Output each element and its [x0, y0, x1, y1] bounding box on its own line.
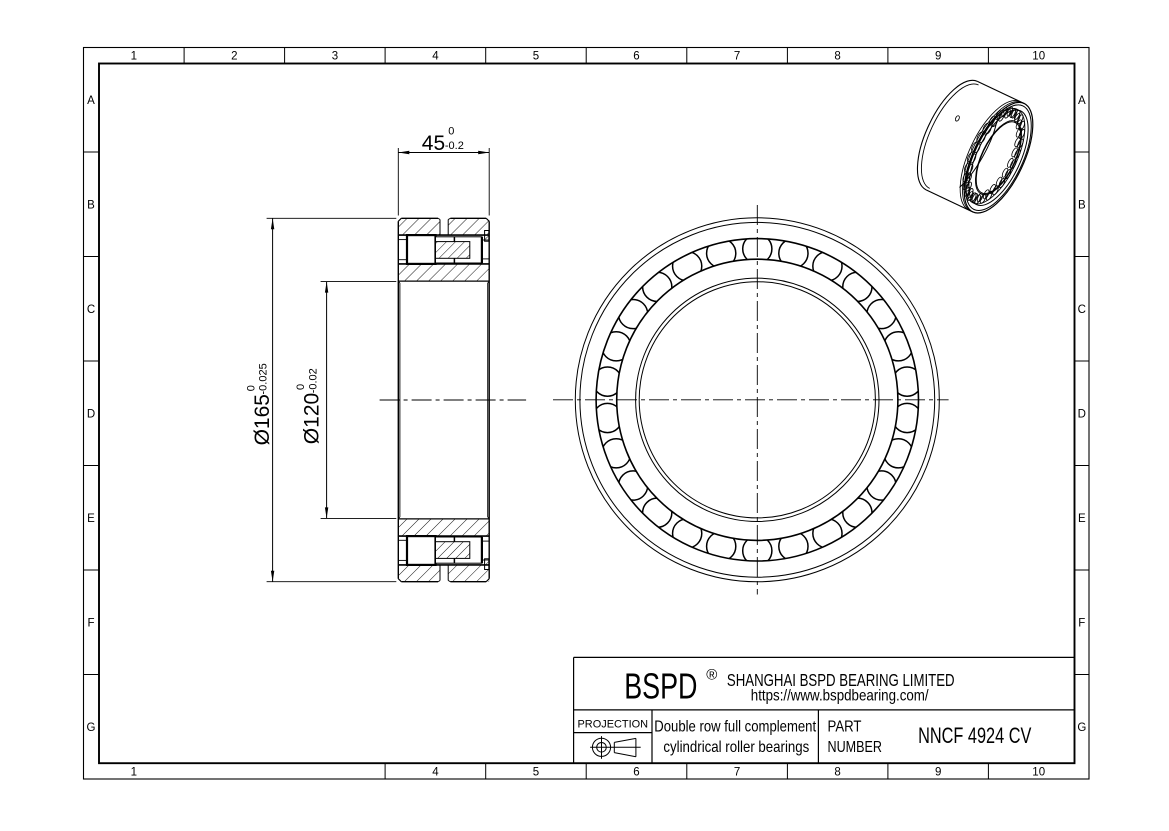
svg-text:BSPD: BSPD: [624, 665, 697, 706]
svg-text:G: G: [87, 722, 96, 734]
svg-text:10: 10: [1032, 51, 1045, 63]
svg-text:0: 0: [448, 125, 454, 137]
svg-text:4: 4: [432, 767, 439, 779]
svg-text:F: F: [87, 618, 94, 630]
svg-text:C: C: [1078, 304, 1086, 316]
svg-text:2: 2: [231, 51, 237, 63]
svg-text:7: 7: [734, 767, 740, 779]
svg-text:0: 0: [295, 384, 307, 390]
svg-text:8: 8: [834, 767, 840, 779]
svg-text:Ø165: Ø165: [251, 394, 274, 445]
svg-text:A: A: [1078, 95, 1086, 107]
svg-text:4: 4: [432, 51, 439, 63]
svg-text:D: D: [87, 408, 95, 420]
svg-text:5: 5: [533, 51, 539, 63]
svg-text:9: 9: [935, 51, 941, 63]
svg-text:NUMBER: NUMBER: [828, 739, 882, 756]
svg-text:Ø120: Ø120: [301, 393, 324, 444]
svg-text:PART: PART: [828, 719, 862, 736]
svg-text:B: B: [87, 199, 95, 211]
svg-text:G: G: [1077, 722, 1086, 734]
svg-text:E: E: [1078, 513, 1086, 525]
svg-text:D: D: [1078, 408, 1086, 420]
svg-text:-0.025: -0.025: [258, 363, 270, 394]
svg-text:E: E: [87, 513, 95, 525]
svg-text:7: 7: [734, 51, 740, 63]
svg-text:-0.2: -0.2: [445, 140, 464, 152]
svg-text:®: ®: [706, 667, 717, 684]
svg-text:F: F: [1078, 618, 1085, 630]
svg-text:45: 45: [422, 132, 445, 155]
svg-text:8: 8: [834, 51, 840, 63]
svg-text:B: B: [1078, 199, 1086, 211]
svg-text:A: A: [87, 95, 95, 107]
svg-text:3: 3: [332, 51, 338, 63]
svg-text:1: 1: [131, 767, 137, 779]
svg-text:6: 6: [633, 51, 639, 63]
svg-text:NNCF 4924 CV: NNCF 4924 CV: [918, 723, 1032, 748]
svg-text:6: 6: [633, 767, 639, 779]
svg-text:9: 9: [935, 767, 941, 779]
svg-text:https://www.bspdbearing.com/: https://www.bspdbearing.com/: [751, 688, 929, 705]
svg-text:Double row full complement: Double row full complement: [654, 719, 816, 736]
svg-text:1: 1: [131, 51, 137, 63]
svg-text:C: C: [87, 304, 95, 316]
svg-text:5: 5: [533, 767, 539, 779]
svg-text:cylindrical roller bearings: cylindrical roller bearings: [663, 739, 809, 756]
svg-text:10: 10: [1032, 767, 1045, 779]
svg-text:PROJECTION: PROJECTION: [578, 719, 649, 731]
svg-text:0: 0: [246, 385, 258, 391]
svg-text:-0.02: -0.02: [307, 368, 319, 393]
